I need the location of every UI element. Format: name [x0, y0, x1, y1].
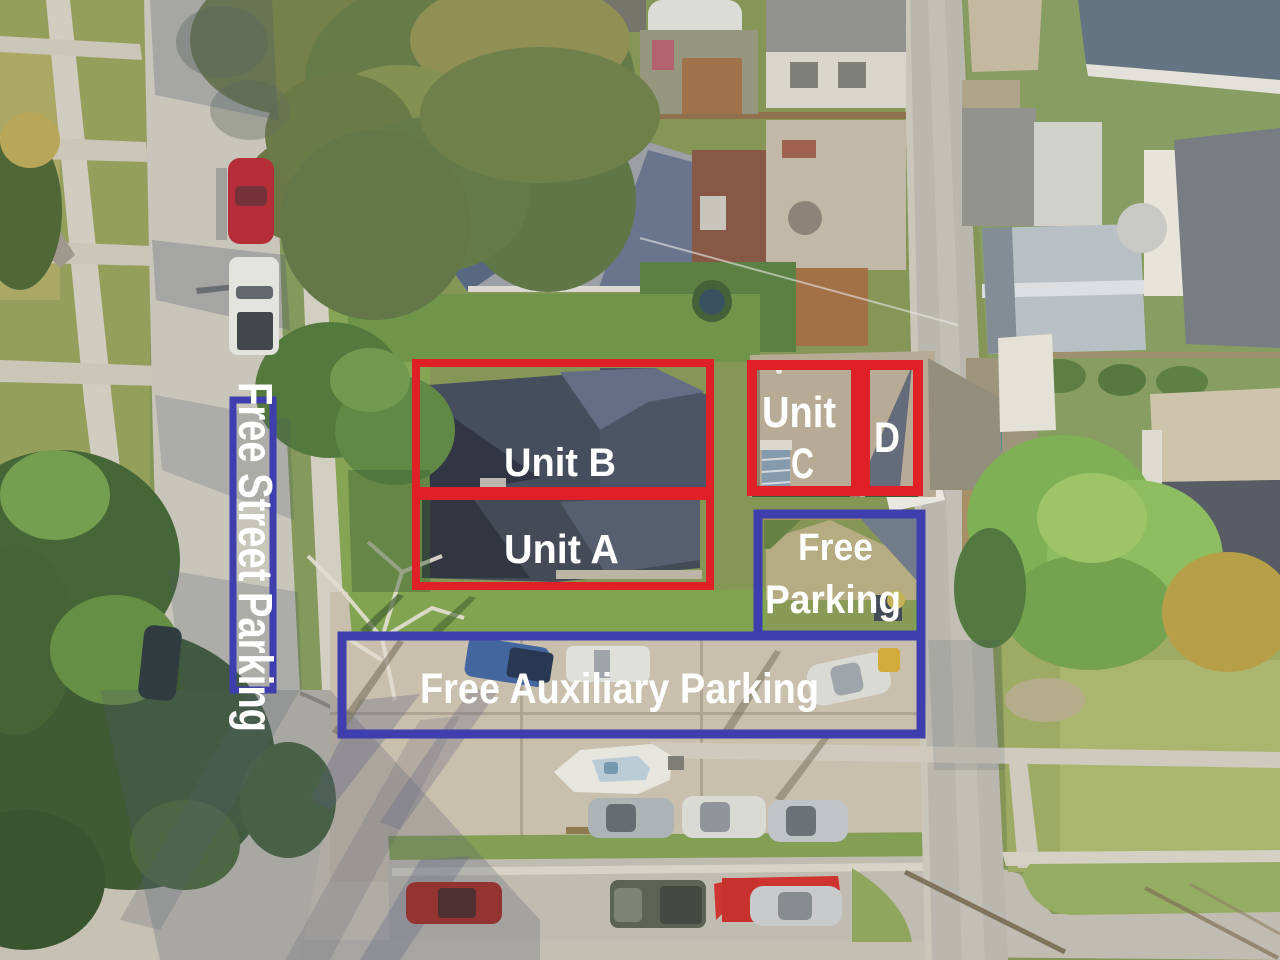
svg-text:Free: Free	[798, 527, 873, 569]
svg-text:Unit A: Unit A	[504, 526, 619, 572]
svg-text:D: D	[874, 414, 900, 462]
svg-text:C: C	[791, 440, 814, 488]
svg-text:Parking: Parking	[765, 578, 901, 622]
svg-text:Unit: Unit	[762, 388, 836, 437]
svg-text:Free Street Parking: Free Street Parking	[228, 382, 281, 732]
svg-text:Unit B: Unit B	[504, 441, 616, 485]
svg-text:Free Auxiliary Parking: Free Auxiliary Parking	[420, 665, 819, 713]
